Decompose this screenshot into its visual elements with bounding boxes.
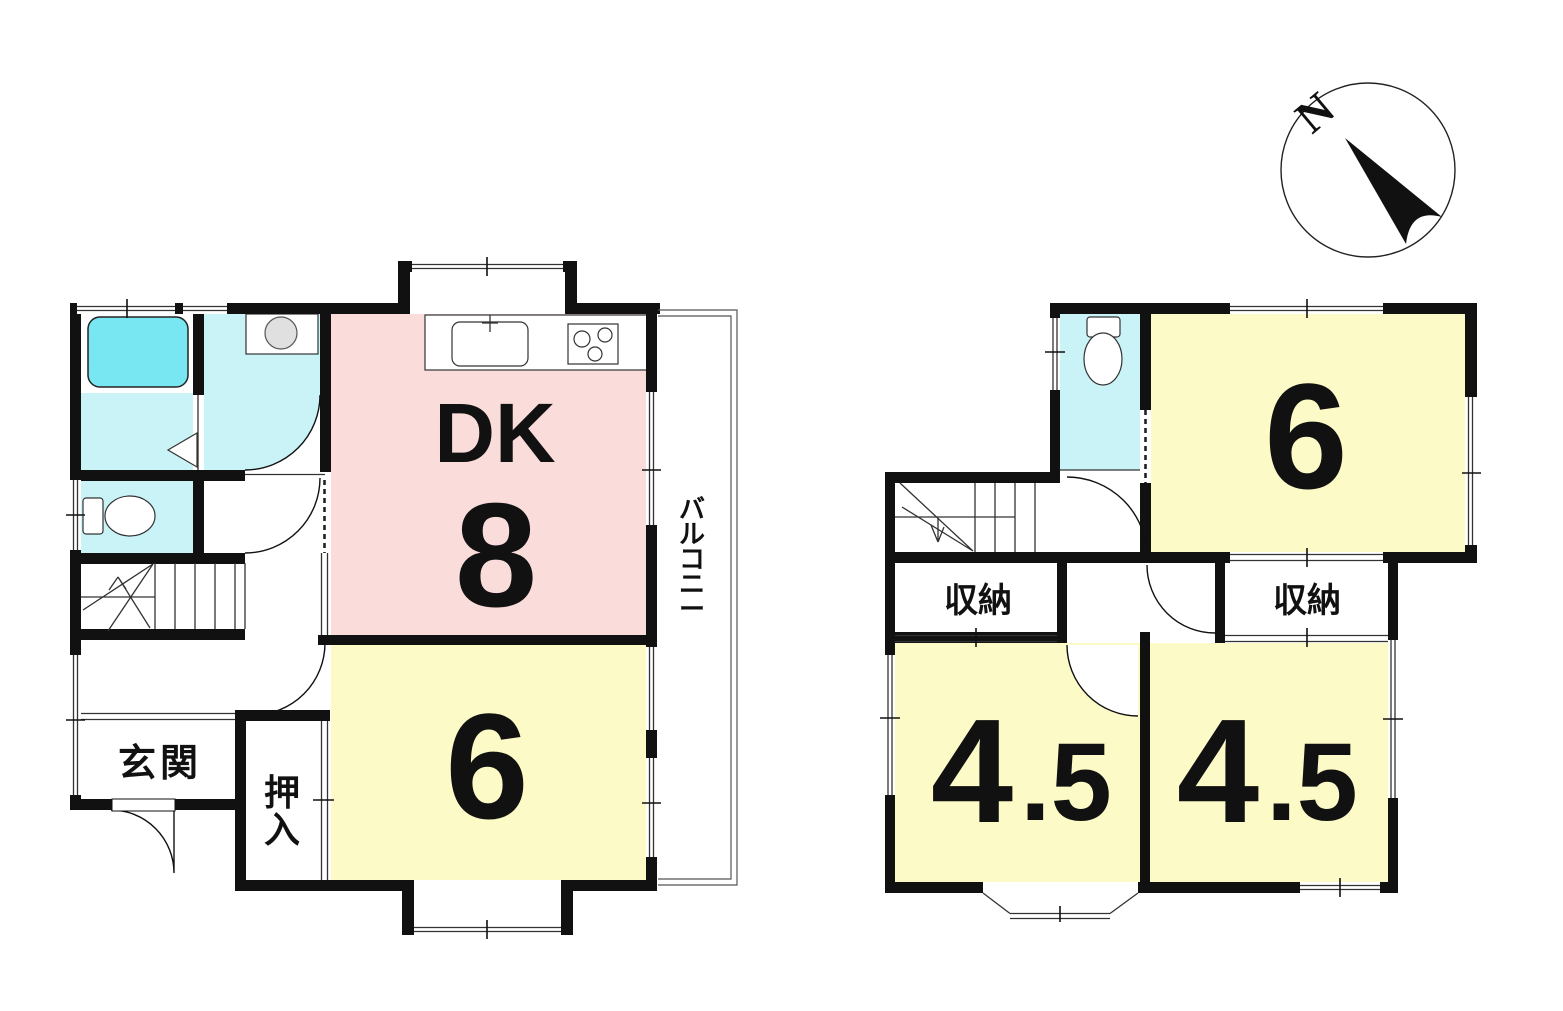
storage-left-label: 収納 [944,582,1012,620]
entrance-step [112,799,175,811]
tatami45-left-size-frac: .5 [1020,721,1112,844]
floor2-stairs [895,483,1035,552]
svg-text:ー: ー [679,594,705,624]
floorplan-page: DK 8 6 玄関 押 入 バ ル コ ニ ー [0,0,1563,1011]
floor2-plan: 6 4 .5 4 .5 収納 収納 [880,299,1481,922]
toilet2f-bowl-icon [1084,333,1122,385]
floor1-stairs [81,563,245,631]
entrance-label: 玄関 [118,743,202,785]
washbasin-icon [265,317,297,349]
tatami6-2f-size-label: 6 [1264,352,1347,520]
balcony-label: バ ル コ ニ ー [679,494,705,624]
compass-rose: N [1281,82,1455,257]
floor1-plan: DK 8 6 玄関 押 入 バ ル コ ニ ー [66,257,737,939]
tatami45-right-size-main: 4 [1177,689,1259,854]
kitchen-counter [425,315,647,370]
tatami45-right-size-frac: .5 [1266,721,1358,844]
closet-label-char2: 入 [264,809,300,850]
bathroom-floor [81,393,193,470]
tatami6-size-label: 6 [445,682,528,850]
floorplan-drawing: DK 8 6 玄関 押 入 バ ル コ ニ ー [0,0,1563,1011]
dk-room-label: DK [434,386,555,480]
tatami45-left-size-main: 4 [931,689,1013,854]
storage-right-label: 収納 [1273,582,1341,620]
toilet-tank-icon [83,498,103,534]
toilet-bowl-icon [105,496,155,536]
bathtub-icon [88,317,188,387]
dk-size-label: 8 [455,473,537,638]
closet-label-char1: 押 [264,772,300,813]
